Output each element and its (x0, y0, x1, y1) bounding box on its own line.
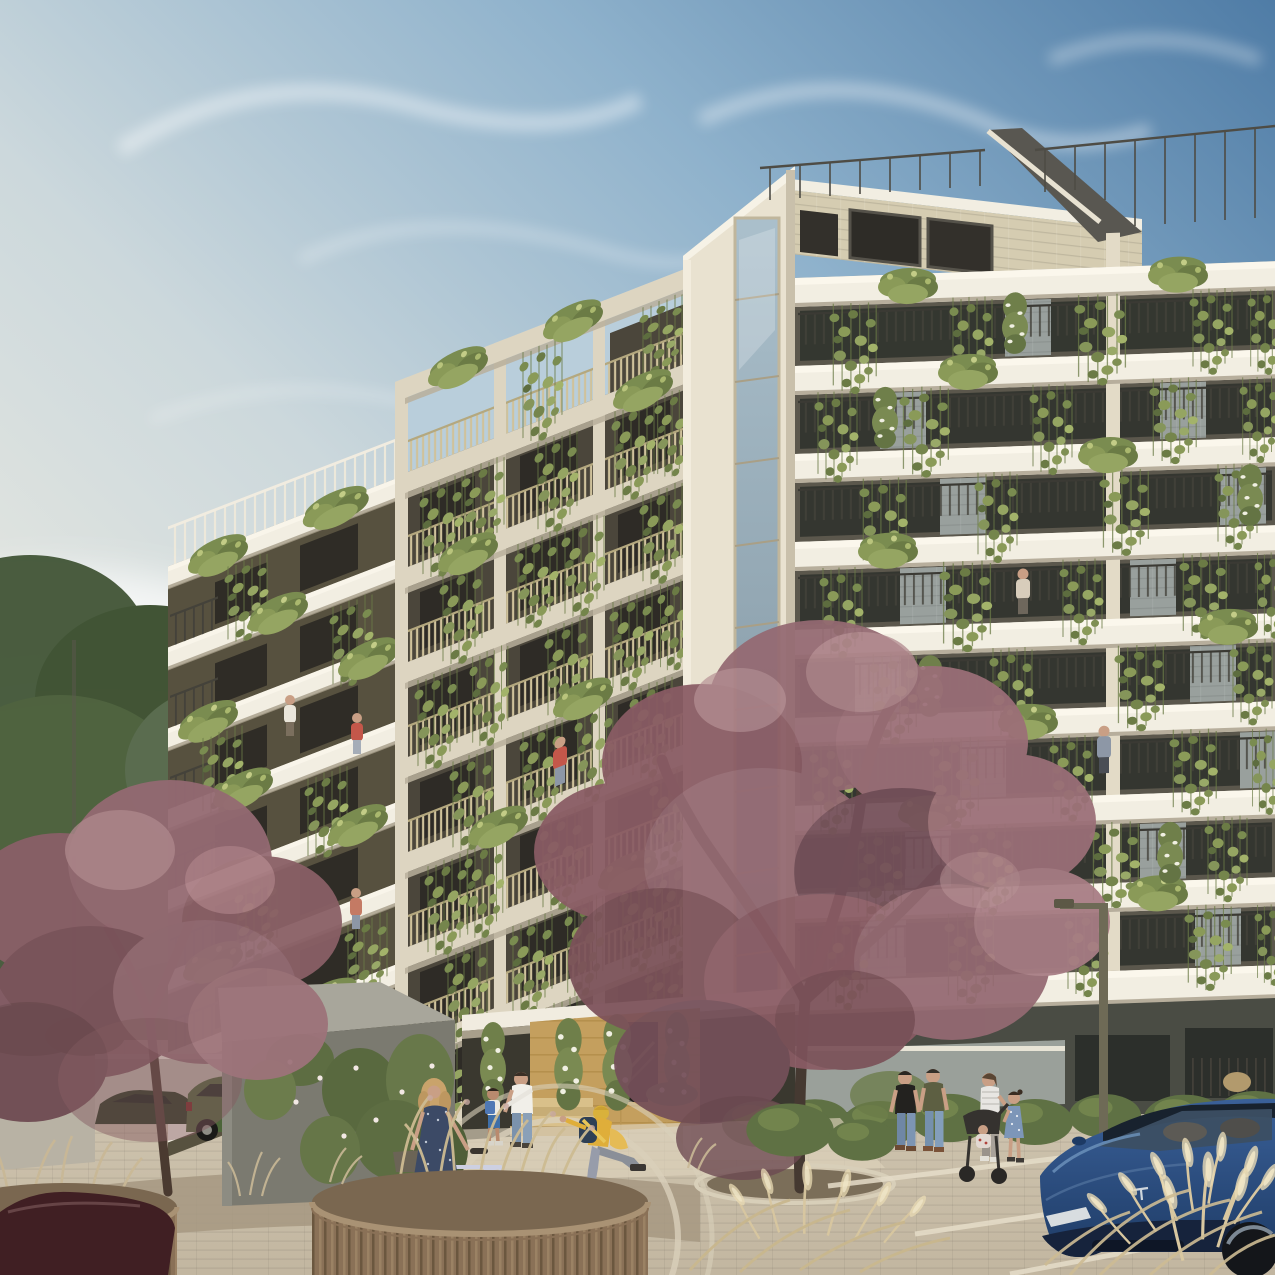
balcony-resident (1097, 725, 1111, 773)
rendering-canvas (0, 0, 1275, 1275)
balcony-resident (553, 734, 567, 787)
balcony-resident (1016, 568, 1030, 614)
